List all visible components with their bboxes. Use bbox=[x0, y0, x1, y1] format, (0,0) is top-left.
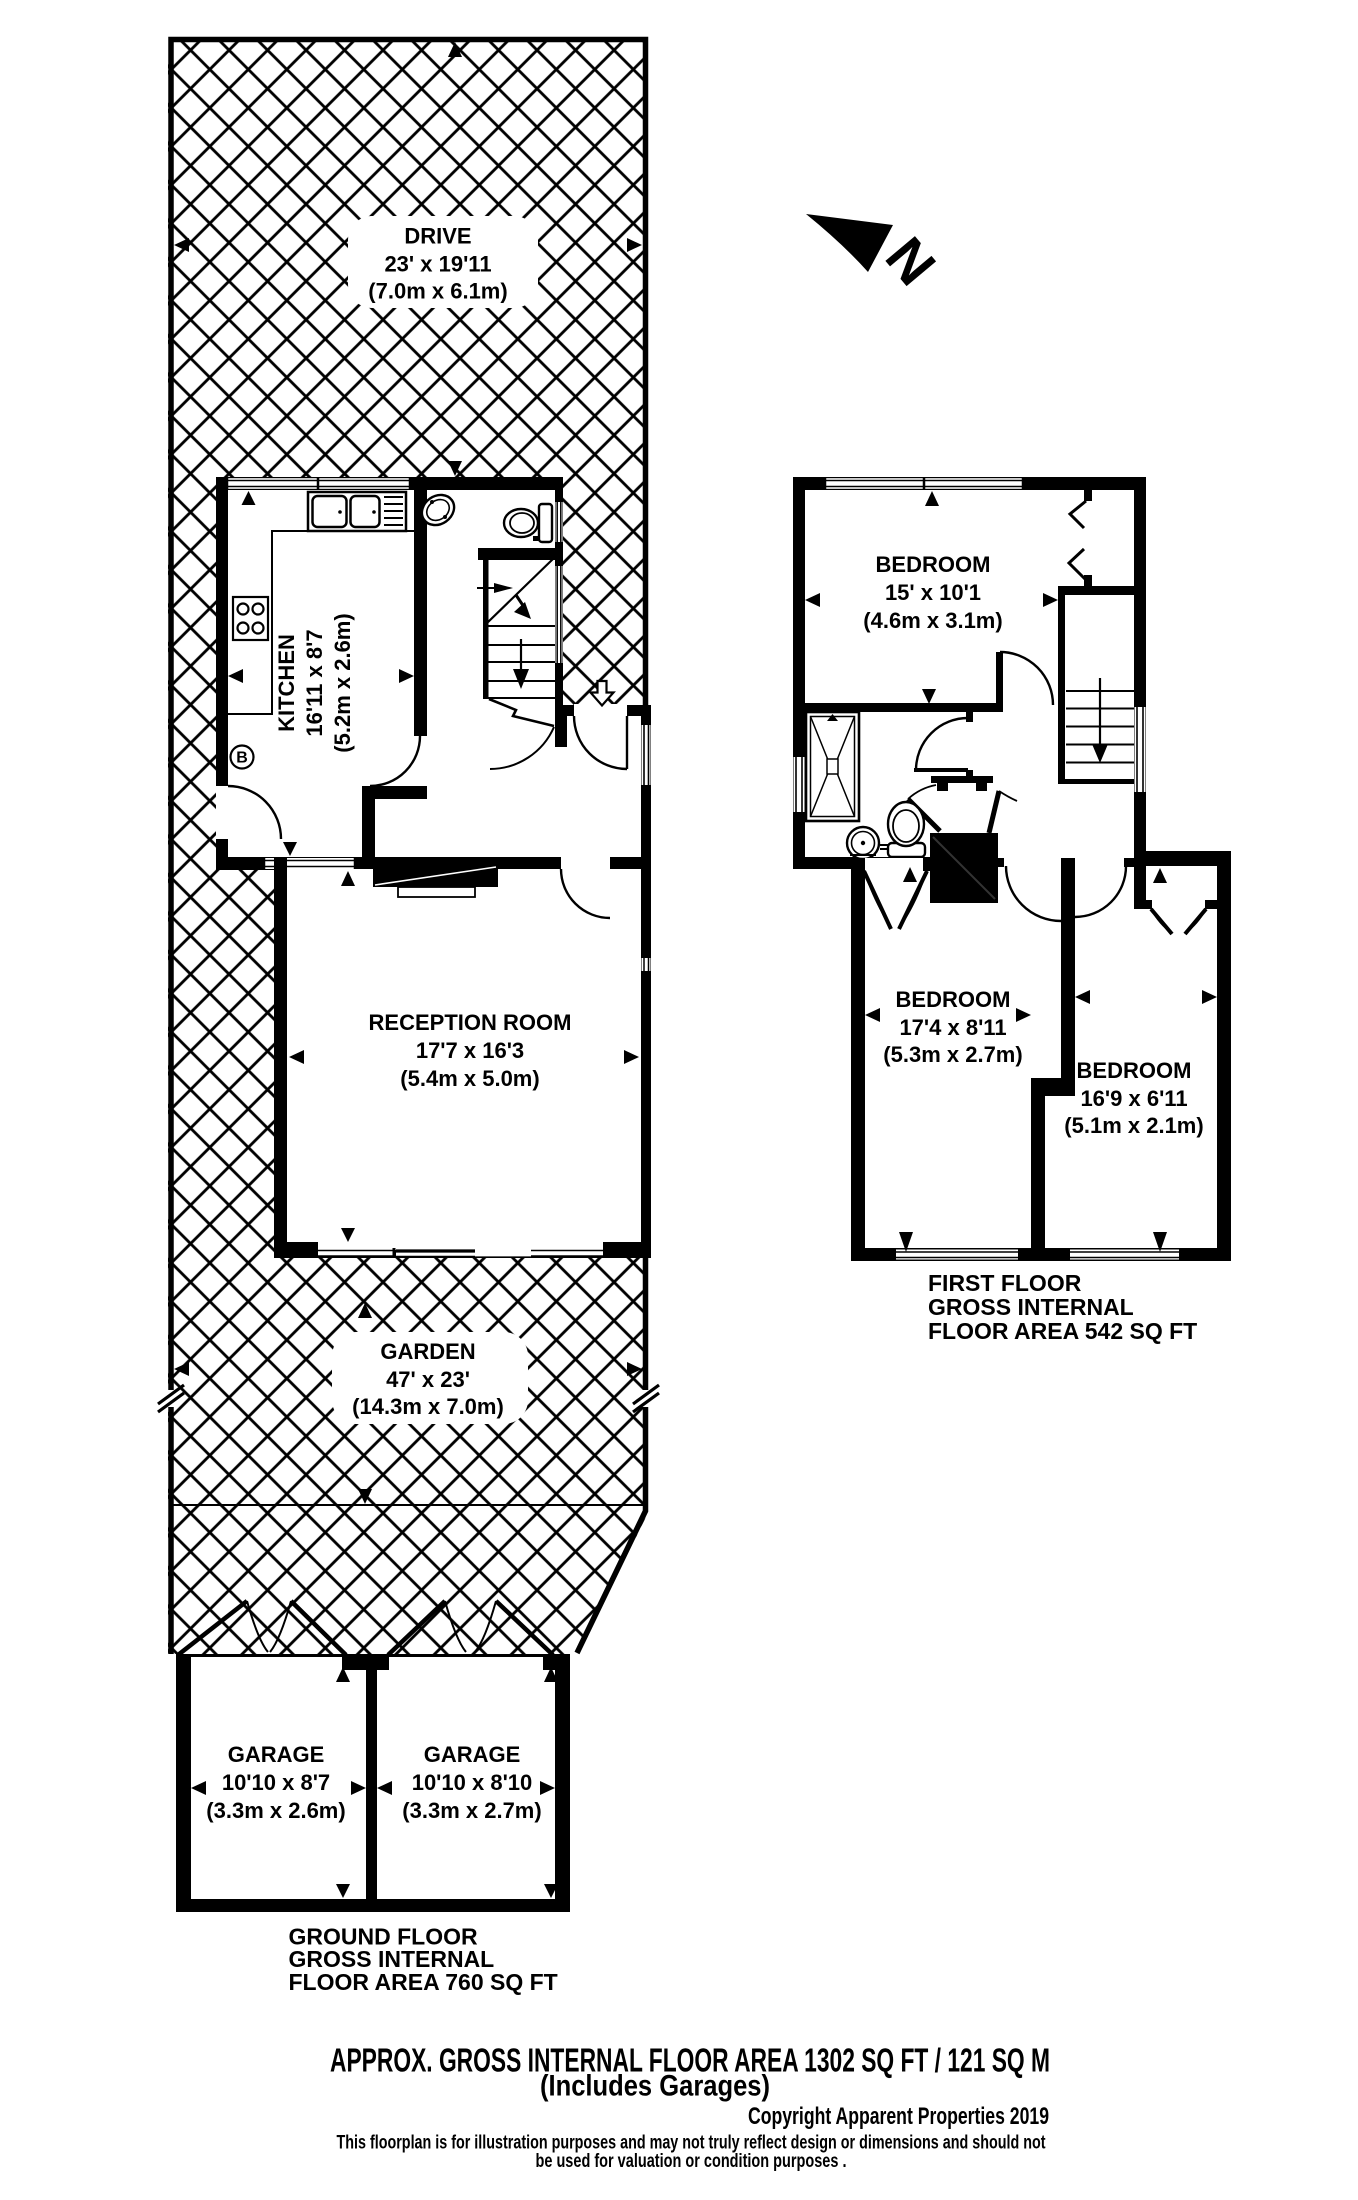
svg-text:(Includes Garages): (Includes Garages) bbox=[540, 2070, 770, 2103]
svg-text:DRIVE: DRIVE bbox=[404, 224, 471, 249]
svg-text:(7.0m x 6.1m): (7.0m x 6.1m) bbox=[368, 279, 507, 304]
svg-text:Copyright Apparent Properties: Copyright Apparent Properties 2019 bbox=[748, 2103, 1049, 2130]
svg-text:FLOOR AREA 542 SQ FT: FLOOR AREA 542 SQ FT bbox=[928, 1318, 1197, 1344]
svg-text:FLOOR AREA 760 SQ FT: FLOOR AREA 760 SQ FT bbox=[289, 1969, 558, 1995]
svg-text:(5.2m x 2.6m): (5.2m x 2.6m) bbox=[330, 613, 355, 752]
svg-text:16'11 x 8'7: 16'11 x 8'7 bbox=[302, 629, 327, 736]
svg-text:47' x 23': 47' x 23' bbox=[386, 1367, 470, 1392]
svg-text:GARAGE: GARAGE bbox=[228, 1742, 325, 1767]
svg-text:10'10 x 8'10: 10'10 x 8'10 bbox=[412, 1770, 533, 1795]
svg-text:(3.3m x 2.7m): (3.3m x 2.7m) bbox=[402, 1798, 541, 1823]
svg-text:BEDROOM: BEDROOM bbox=[1077, 1058, 1192, 1083]
svg-text:BEDROOM: BEDROOM bbox=[896, 987, 1011, 1012]
svg-text:B: B bbox=[236, 750, 248, 767]
svg-text:GROSS INTERNAL: GROSS INTERNAL bbox=[928, 1294, 1134, 1320]
svg-text:(5.3m x 2.7m): (5.3m x 2.7m) bbox=[883, 1042, 1022, 1067]
svg-text:(5.1m x 2.1m): (5.1m x 2.1m) bbox=[1064, 1113, 1203, 1138]
svg-text:10'10 x 8'7: 10'10 x 8'7 bbox=[222, 1770, 330, 1795]
svg-text:17'4 x 8'11: 17'4 x 8'11 bbox=[899, 1015, 1006, 1040]
svg-text:GARDEN: GARDEN bbox=[380, 1339, 475, 1364]
svg-text:(14.3m x 7.0m): (14.3m x 7.0m) bbox=[352, 1394, 504, 1419]
svg-text:(5.4m x 5.0m): (5.4m x 5.0m) bbox=[400, 1066, 539, 1091]
svg-text:KITCHEN: KITCHEN bbox=[274, 634, 299, 732]
svg-text:GARAGE: GARAGE bbox=[424, 1742, 521, 1767]
svg-text:(3.3m x 2.6m): (3.3m x 2.6m) bbox=[206, 1798, 345, 1823]
svg-text:15' x 10'1: 15' x 10'1 bbox=[885, 580, 981, 605]
svg-text:23' x 19'11: 23' x 19'11 bbox=[384, 252, 491, 277]
svg-text:BEDROOM: BEDROOM bbox=[876, 552, 991, 577]
svg-text:be used for valuation or condi: be used for valuation or condition purpo… bbox=[536, 2151, 847, 2172]
svg-text:16'9 x 6'11: 16'9 x 6'11 bbox=[1080, 1086, 1187, 1111]
svg-text:(4.6m x 3.1m): (4.6m x 3.1m) bbox=[863, 608, 1002, 633]
svg-text:FIRST FLOOR: FIRST FLOOR bbox=[928, 1270, 1082, 1296]
svg-text:17'7 x 16'3: 17'7 x 16'3 bbox=[416, 1038, 524, 1063]
svg-text:RECEPTION ROOM: RECEPTION ROOM bbox=[369, 1010, 572, 1035]
